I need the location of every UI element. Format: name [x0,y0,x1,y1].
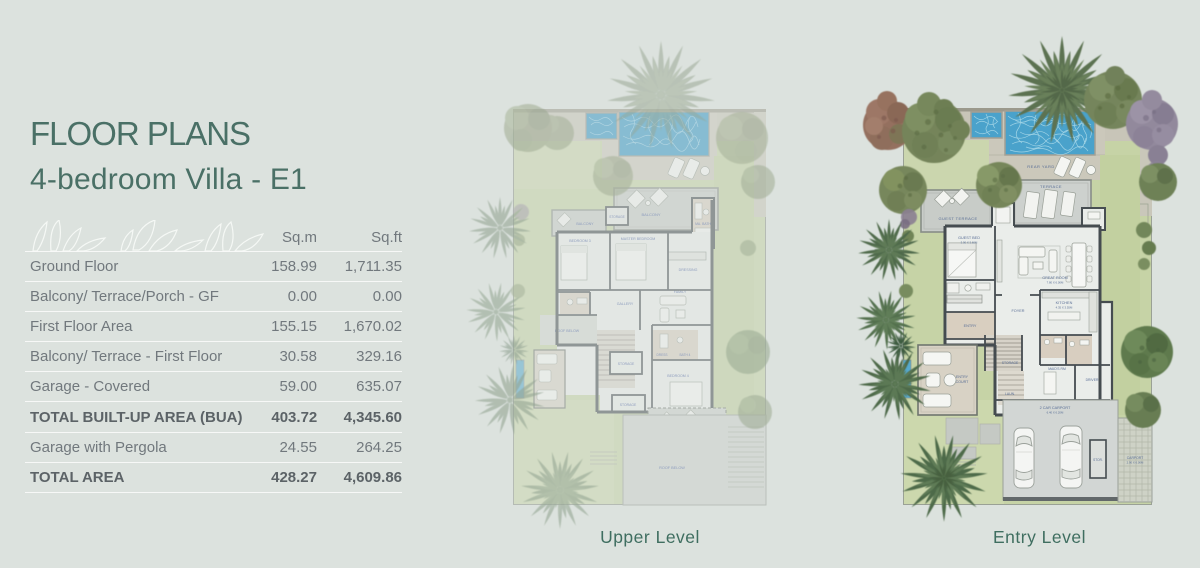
svg-text:GUEST TERRACE: GUEST TERRACE [938,216,977,221]
svg-text:BEDROOM 4: BEDROOM 4 [667,374,689,378]
svg-text:ROOF BELOW: ROOF BELOW [659,466,685,470]
svg-text:CARPORT: CARPORT [1127,456,1144,460]
svg-text:TERRACE: TERRACE [1040,184,1062,189]
svg-text:3.90 X 3.60M: 3.90 X 3.60M [961,241,978,245]
svg-text:MAID'S RM: MAID'S RM [1048,367,1066,371]
svg-text:STORAGE: STORAGE [618,362,635,366]
svg-text:ENTRY: ENTRY [956,375,969,379]
svg-text:2 CAR CARPORT: 2 CAR CARPORT [1040,406,1071,410]
svg-text:KITCHEN: KITCHEN [1056,301,1073,305]
svg-text:BALCONY: BALCONY [576,222,594,226]
svg-text:2.90 X 6.00M: 2.90 X 6.00M [1127,461,1144,465]
svg-text:DRESSING: DRESSING [679,268,698,272]
svg-text:6.40 X 6.20M: 6.40 X 6.20M [1047,411,1064,415]
svg-text:BALCONY: BALCONY [641,212,660,217]
svg-text:REAR YARD: REAR YARD [1027,164,1054,169]
svg-text:MA. BATH: MA. BATH [695,222,711,226]
svg-text:STORAGE: STORAGE [1002,361,1019,365]
svg-text:MASTER BEDROOM: MASTER BEDROOM [621,237,656,241]
svg-text:GREAT ROOM: GREAT ROOM [1042,276,1068,280]
svg-text:COURT: COURT [956,380,970,384]
svg-text:FOYER: FOYER [1011,309,1024,313]
svg-text:BATH 4: BATH 4 [680,353,691,357]
svg-text:STOR.: STOR. [1093,458,1103,462]
svg-text:BEDROOM 3: BEDROOM 3 [569,239,591,243]
svg-text:STORAGE: STORAGE [620,403,637,407]
svg-text:GUEST BED: GUEST BED [958,236,980,240]
svg-text:LAUN.: LAUN. [1005,392,1015,396]
svg-text:ENTRY: ENTRY [964,324,977,328]
svg-text:7.80 X 6.00M: 7.80 X 6.00M [1047,281,1064,285]
svg-text:ROOF BELOW: ROOF BELOW [555,329,580,333]
svg-text:GALLERY: GALLERY [617,302,634,306]
svg-text:DRIVER: DRIVER [1086,378,1099,382]
svg-text:4.35 X 3.55M: 4.35 X 3.55M [1056,306,1073,310]
svg-text:STORAGE: STORAGE [609,215,625,219]
svg-text:DRESS: DRESS [657,353,668,357]
